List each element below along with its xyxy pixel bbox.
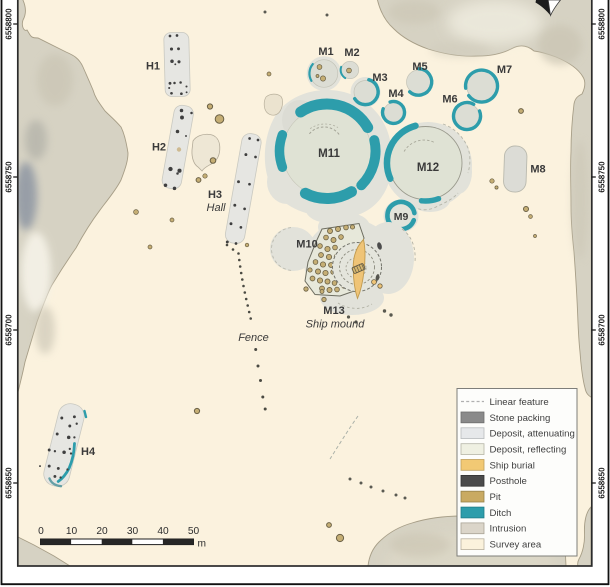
svg-text:6558700: 6558700 — [5, 314, 14, 346]
svg-text:6558750: 6558750 — [598, 161, 607, 193]
svg-text:Deposit, attenuating: Deposit, attenuating — [490, 429, 575, 440]
svg-text:M7: M7 — [497, 64, 512, 76]
svg-text:Pit: Pit — [490, 492, 502, 503]
svg-text:6558800: 6558800 — [598, 8, 607, 40]
svg-text:M8: M8 — [530, 164, 545, 176]
svg-text:m: m — [198, 539, 207, 550]
svg-text:6558650: 6558650 — [5, 467, 14, 499]
svg-text:Ship mound: Ship mound — [306, 319, 366, 331]
svg-text:6558800: 6558800 — [5, 8, 14, 40]
svg-text:40: 40 — [157, 526, 169, 537]
svg-text:Stone packing: Stone packing — [490, 413, 551, 424]
svg-text:6558650: 6558650 — [598, 467, 607, 499]
svg-text:H3: H3 — [208, 189, 222, 201]
svg-text:M1: M1 — [318, 46, 333, 58]
svg-text:M10: M10 — [296, 239, 317, 251]
svg-text:10: 10 — [66, 526, 78, 537]
svg-text:Intrusion: Intrusion — [490, 524, 527, 535]
svg-text:M11: M11 — [318, 148, 340, 160]
svg-text:6558700: 6558700 — [598, 314, 607, 346]
svg-text:M6: M6 — [442, 94, 457, 106]
svg-text:Fence: Fence — [238, 332, 269, 344]
svg-text:M12: M12 — [417, 162, 439, 174]
svg-text:Deposit, reflecting: Deposit, reflecting — [490, 444, 567, 455]
svg-text:6558750: 6558750 — [5, 161, 14, 193]
svg-text:Hall: Hall — [207, 202, 227, 214]
svg-text:H2: H2 — [152, 142, 166, 154]
svg-text:Linear feature: Linear feature — [490, 397, 549, 408]
svg-text:H1: H1 — [146, 61, 160, 73]
svg-text:20: 20 — [96, 526, 108, 537]
svg-text:M4: M4 — [388, 88, 404, 100]
svg-text:H4: H4 — [81, 446, 96, 458]
svg-text:Survey area: Survey area — [490, 540, 542, 551]
svg-text:30: 30 — [127, 526, 139, 537]
svg-text:M13: M13 — [323, 305, 344, 317]
svg-text:M3: M3 — [372, 72, 387, 84]
svg-text:Ditch: Ditch — [490, 508, 512, 519]
svg-text:M5: M5 — [412, 61, 427, 73]
svg-text:Ship burial: Ship burial — [490, 460, 535, 471]
svg-text:M2: M2 — [344, 47, 359, 59]
svg-text:0: 0 — [38, 526, 44, 537]
svg-text:Posthole: Posthole — [490, 476, 527, 487]
svg-text:M9: M9 — [394, 211, 409, 223]
svg-text:50: 50 — [188, 526, 200, 537]
